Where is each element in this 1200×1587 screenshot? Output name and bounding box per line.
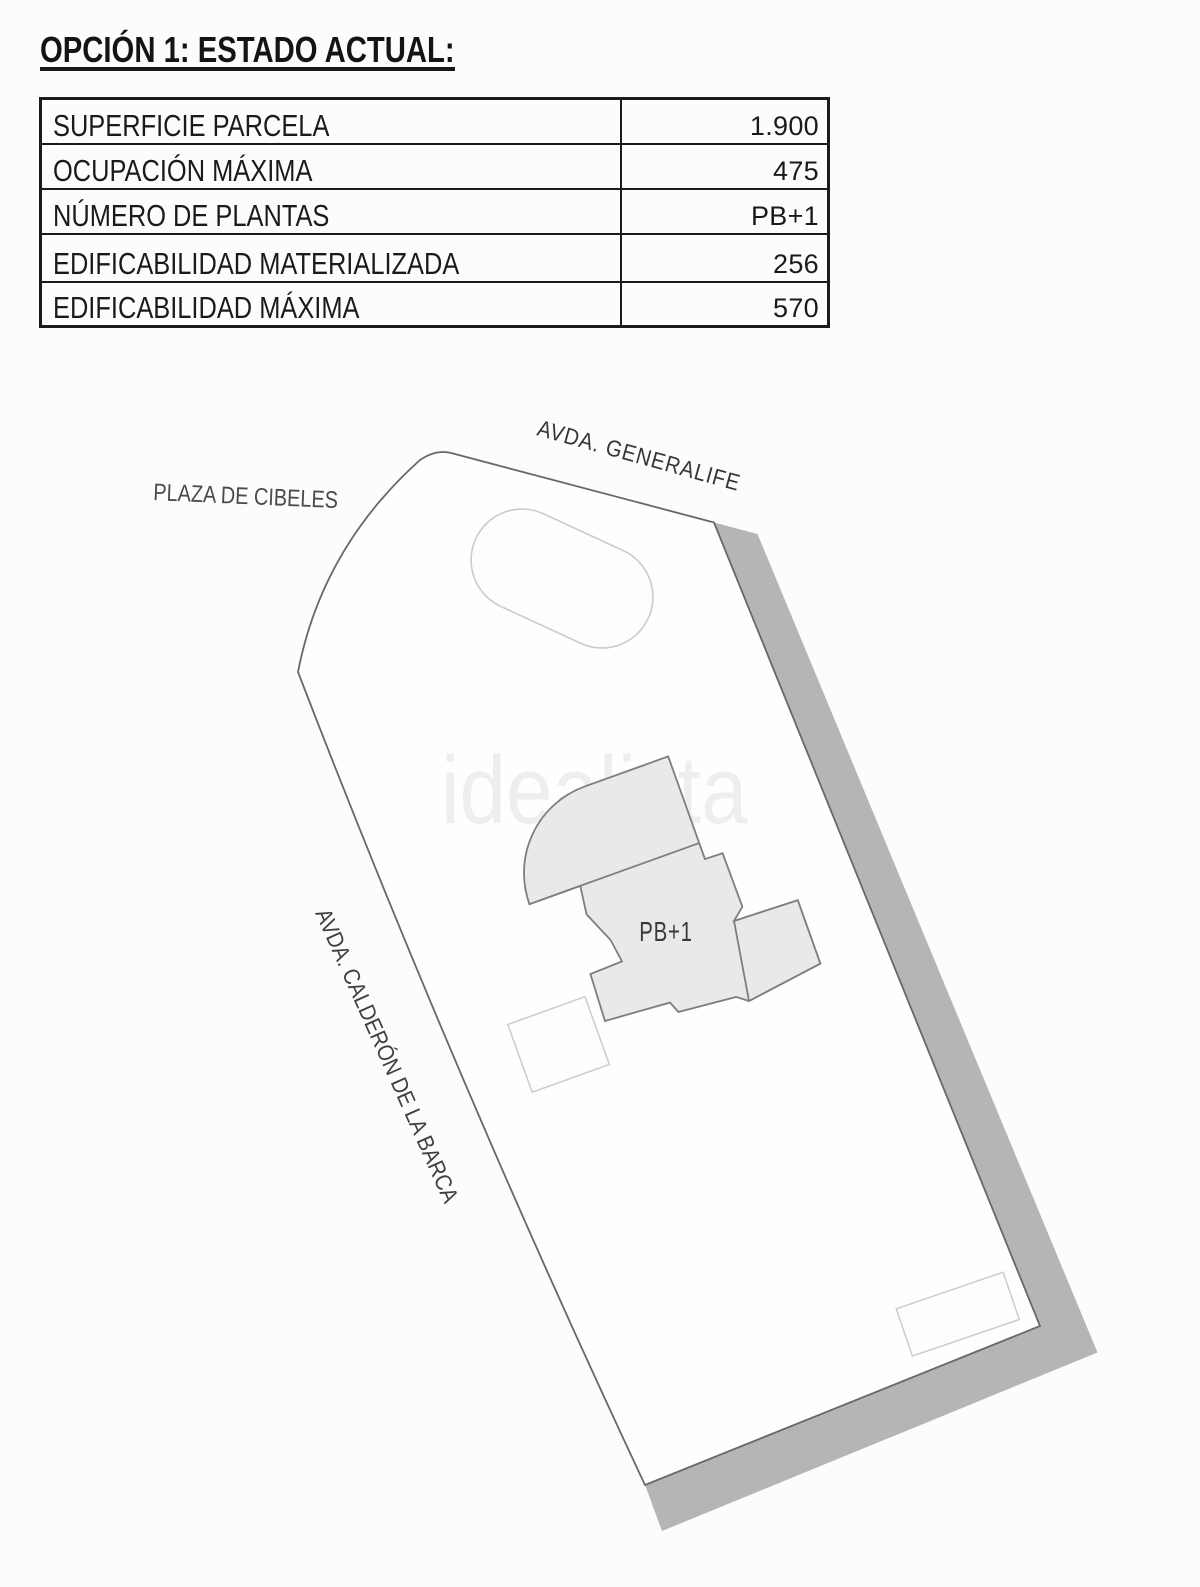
svg-text:PLAZA DE CIBELES: PLAZA DE CIBELES — [153, 478, 339, 513]
svg-text:PB+1: PB+1 — [639, 917, 692, 948]
